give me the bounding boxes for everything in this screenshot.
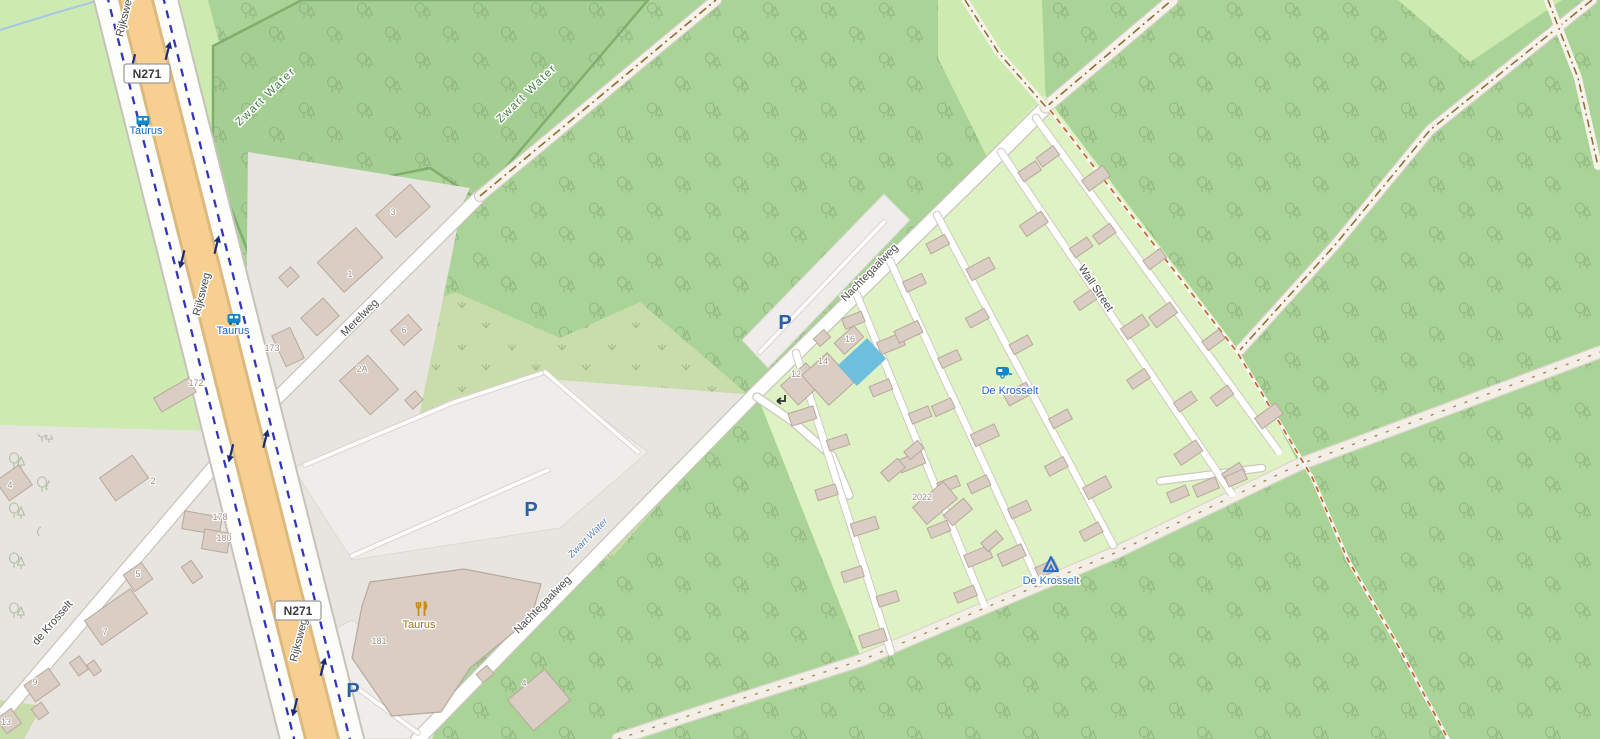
bus-window xyxy=(139,118,142,121)
route-ref-badge-text: N271 xyxy=(284,604,313,618)
house-label-7: 7 xyxy=(102,627,107,637)
house-label-14: 14 xyxy=(818,356,828,366)
house-label-12: 12 xyxy=(791,369,801,379)
caravan-window xyxy=(998,369,1002,372)
parking-icon[interactable]: P xyxy=(346,680,359,702)
house-label-6: 6 xyxy=(401,325,406,335)
bus-body xyxy=(137,116,150,125)
house-label-173: 173 xyxy=(264,343,279,353)
bus-window xyxy=(235,316,238,319)
house-label-16: 16 xyxy=(845,334,855,344)
parking-icon[interactable]: P xyxy=(524,499,537,521)
house-label-181: 181 xyxy=(371,636,386,646)
house-label-1: 1 xyxy=(347,269,352,279)
map-viewport[interactable]: PPP Merelwegde KrosseltNachtegaalwegNach… xyxy=(0,0,1600,739)
route-ref-badge-text: N271 xyxy=(133,67,162,81)
house-label-4: 4 xyxy=(521,678,526,688)
caravan-wheel xyxy=(1001,375,1004,378)
house-label-180: 180 xyxy=(216,533,231,543)
house-label-2022: 2022 xyxy=(912,492,932,502)
transit-label-taurus: Taurus xyxy=(216,325,250,337)
house-label-2: 2 xyxy=(150,476,155,486)
amenity-label-taurus: Taurus xyxy=(402,619,436,631)
transit-label-taurus: Taurus xyxy=(129,125,163,137)
house-label-172: 172 xyxy=(188,378,203,388)
house-label-3: 3 xyxy=(390,207,395,217)
parking-letter: P xyxy=(524,499,537,521)
bus-window xyxy=(230,316,233,319)
parking-letter: P xyxy=(346,680,359,702)
route-ref-badge: N271 xyxy=(124,64,170,83)
parking-icon[interactable]: P xyxy=(778,312,791,334)
house-label-9: 9 xyxy=(32,677,37,687)
house-label-4: 4 xyxy=(7,480,12,490)
house-label-13: 13 xyxy=(1,717,11,727)
transit-label-de-krosselt: De Krosselt xyxy=(982,385,1039,397)
parking-letter: P xyxy=(778,312,791,334)
openstreetmap-canvas[interactable]: PPP Merelwegde KrosseltNachtegaalwegNach… xyxy=(0,0,1600,739)
bus-window xyxy=(144,118,147,121)
house-label-178: 178 xyxy=(212,512,227,522)
house-label-2a: 2A xyxy=(356,364,367,374)
house-label-5: 5 xyxy=(135,569,140,579)
bus-body xyxy=(228,314,241,323)
route-ref-badge: N271 xyxy=(275,601,321,620)
tourism-label-de-krosselt: De Krosselt xyxy=(1023,575,1080,587)
